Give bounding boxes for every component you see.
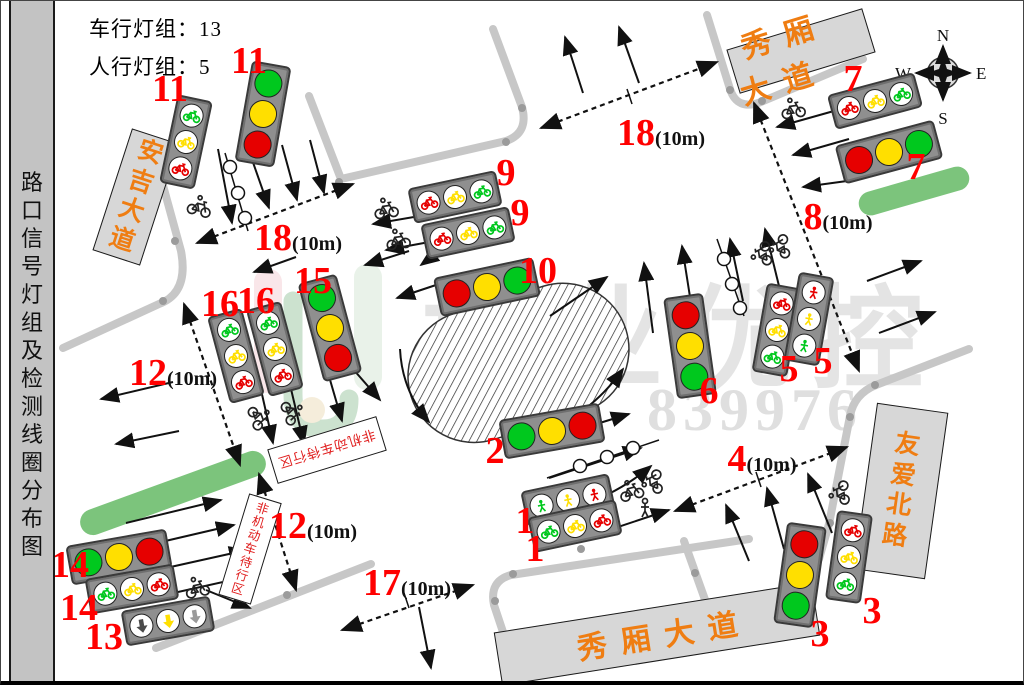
- light-bulb-yellow: [154, 607, 182, 635]
- light-bulb-lightgray: [181, 602, 209, 630]
- light-bulb-green: [305, 281, 339, 315]
- label-14: 14: [51, 546, 89, 584]
- light-bulb-yellow: [172, 128, 200, 156]
- measurement-lines: [184, 62, 859, 630]
- light-bulb-green: [758, 343, 786, 371]
- light-bulb-red: [834, 93, 863, 122]
- label-4: 4(10m): [728, 440, 797, 478]
- youai-north-road: 友爱北路: [854, 403, 949, 579]
- traffic-light-2-vehicle: [498, 402, 605, 459]
- label-6: 6: [700, 372, 719, 410]
- label-8: 8(10m): [804, 198, 873, 236]
- label-3: 3: [811, 615, 830, 653]
- light-bulb-red: [321, 341, 355, 375]
- light-bulb-yellow: [561, 512, 589, 540]
- label-12: 12(10m): [269, 507, 357, 545]
- light-bulb-yellow: [860, 86, 889, 115]
- label-10: 10: [519, 252, 557, 290]
- wait-zone-sign: 非机动车待行区: [267, 416, 387, 484]
- watermark-brand: 振业优控: [421, 249, 941, 411]
- light-bulb-green: [780, 590, 812, 622]
- traffic-light-3-bike: [825, 510, 873, 604]
- detector-loops: [224, 153, 747, 478]
- light-bulb-green: [467, 177, 495, 205]
- light-bulb-red: [789, 528, 821, 560]
- traffic-light-1-bike: [527, 499, 623, 553]
- flow-arrows: [101, 27, 935, 668]
- sidebar: 路口信号灯组及检测线圈分布图: [9, 1, 55, 685]
- light-bulb-green: [534, 517, 562, 545]
- compass-east: E: [976, 64, 986, 83]
- header-vehicle-groups: 车行灯组：13: [89, 13, 222, 43]
- traffic-light-15-vehicle: [297, 274, 362, 383]
- anji-avenue: 安吉大道: [92, 128, 179, 265]
- label-14: 14: [60, 589, 98, 627]
- light-bulb-yellow: [784, 559, 816, 591]
- intersection-diagram: 振业优控 密码：839976: [0, 0, 1024, 685]
- light-bulb-green: [501, 264, 534, 297]
- light-bulb-red: [133, 535, 165, 567]
- traffic-light-7-bike: [827, 72, 923, 130]
- light-bulb-green: [679, 361, 711, 393]
- traffic-light-14-bike: [85, 563, 180, 614]
- light-bulb-green: [177, 101, 205, 129]
- light-bulb-green: [505, 420, 537, 452]
- label-12: 12(10m): [129, 354, 217, 392]
- labels-layer: 1111991018(10m)18(10m)778(10m)16161512(1…: [1, 1, 1024, 685]
- light-bulb-red: [414, 188, 442, 216]
- light-bulb-darkgray: [128, 612, 156, 640]
- light-bulb-yellow: [536, 415, 568, 447]
- traffic-light-7-vehicle: [835, 119, 944, 184]
- light-bulb-green: [253, 308, 282, 337]
- label-16: 16: [201, 285, 239, 323]
- traffic-light-5-ped: [783, 272, 834, 367]
- label-7: 7: [907, 148, 926, 186]
- light-bulb-green: [902, 127, 936, 161]
- traffic-light-6-vehicle: [663, 293, 717, 400]
- compass-rose: N S W E: [895, 26, 986, 128]
- light-bulb-red: [566, 409, 598, 441]
- light-bulb-green: [480, 213, 508, 241]
- light-bulb-yellow: [554, 486, 582, 514]
- watermark-layer: 振业优控 密码：839976: [1, 1, 1024, 685]
- light-bulb-green: [72, 546, 104, 578]
- light-bulb-red: [241, 128, 273, 160]
- light-bulb-red: [267, 360, 296, 389]
- light-bulb-yellow: [795, 305, 823, 333]
- bicycle-icons: [184, 96, 850, 598]
- label-1: 1: [526, 530, 545, 568]
- label-9: 9: [497, 154, 516, 192]
- label-16: 16: [237, 282, 275, 320]
- light-bulb-red: [427, 224, 455, 252]
- light-bulb-red: [768, 290, 796, 318]
- traffic-light-9-bike-a: [407, 170, 503, 224]
- xiuxiang-avenue-north: 秀厢大道: [726, 8, 875, 94]
- light-bulb-yellow: [872, 135, 906, 169]
- label-2: 2: [486, 432, 505, 470]
- light-bulb-yellow: [763, 316, 791, 344]
- traffic-light-10-vehicle: [433, 257, 541, 317]
- traffic-light-16-bike-b: [207, 308, 265, 404]
- central-waiting-oval: [392, 267, 646, 459]
- light-bulb-yellow: [260, 334, 289, 363]
- light-bulb-red: [166, 154, 194, 182]
- header-ped-groups: 人行灯组：5: [89, 51, 211, 81]
- wait-zone-sign: 非机动车待行区: [218, 493, 282, 604]
- light-bulb-green: [252, 67, 284, 99]
- median-strips: [76, 164, 972, 539]
- signs-layer: 安吉大道秀厢大道秀厢大道友爱北路非机动车待行区非机动车待行区: [1, 1, 1024, 685]
- watermark-logo: [1, 1, 1024, 685]
- road-edges: [63, 15, 969, 671]
- light-bulb-yellow: [247, 98, 279, 130]
- traffic-light-5-bike: [751, 283, 802, 378]
- light-bulb-red: [800, 279, 828, 307]
- light-bulb-red: [580, 480, 608, 508]
- label-1: 1: [516, 502, 535, 540]
- traffic-light-9-bike-b: [420, 206, 516, 260]
- label-3: 3: [863, 592, 882, 630]
- light-bulb-red: [587, 506, 615, 534]
- label-9: 9: [511, 194, 530, 232]
- traffic-light-11-vehicle: [234, 60, 291, 167]
- compass-west: W: [895, 64, 912, 83]
- light-bulb-green: [790, 332, 818, 360]
- xiuxiang-avenue-south: 秀厢大道: [494, 582, 820, 685]
- light-bulb-yellow: [454, 219, 482, 247]
- label-17: 17(10m): [363, 564, 451, 602]
- light-bulb-yellow: [441, 183, 469, 211]
- diagram-canvas: N S W E: [1, 1, 1024, 685]
- light-bulb-green: [214, 315, 243, 344]
- light-bulb-green: [92, 580, 120, 608]
- traffic-light-11-bike: [159, 94, 213, 190]
- compass-north: N: [937, 26, 949, 45]
- measurement-ticks: [404, 89, 761, 608]
- traffic-light-13-arrow: [121, 595, 216, 646]
- label-7: 7: [844, 60, 863, 98]
- light-bulb-yellow: [118, 575, 146, 603]
- light-bulb-green: [527, 491, 555, 519]
- traffic-light-16-bike-a: [246, 301, 304, 397]
- light-bulb-red: [670, 299, 702, 331]
- label-18: 18(10m): [617, 114, 705, 152]
- traffic-lights-layer: [1, 1, 1024, 685]
- watermark-code: 密码：839976: [449, 361, 863, 448]
- light-bulb-yellow: [103, 541, 135, 573]
- light-bulb-yellow: [470, 270, 503, 303]
- light-bulb-red: [842, 143, 876, 177]
- light-bulb-yellow: [835, 543, 862, 570]
- light-bulb-red: [228, 367, 257, 396]
- label-11: 11: [231, 42, 267, 80]
- traffic-light-3-vehicle: [773, 522, 827, 629]
- light-bulb-green: [832, 570, 859, 597]
- light-bulb-red: [440, 277, 473, 310]
- road-joint-dots: [159, 86, 879, 605]
- light-bulb-yellow: [674, 330, 706, 362]
- label-18: 18(10m): [254, 219, 342, 257]
- light-bulb-red: [145, 570, 173, 598]
- sidebar-title: 路口信号灯组及检测线圈分布图: [11, 169, 53, 561]
- compass-south: S: [938, 109, 947, 128]
- light-bulb-red: [839, 517, 866, 544]
- label-5: 5: [814, 342, 833, 380]
- label-15: 15: [294, 262, 332, 300]
- label-5: 5: [780, 350, 799, 388]
- light-bulb-green: [886, 79, 915, 108]
- traffic-light-1-ped: [520, 473, 616, 527]
- light-bulb-yellow: [221, 341, 250, 370]
- label-13: 13: [85, 618, 123, 656]
- traffic-light-14-vehicle: [65, 528, 172, 585]
- light-bulb-yellow: [313, 311, 347, 345]
